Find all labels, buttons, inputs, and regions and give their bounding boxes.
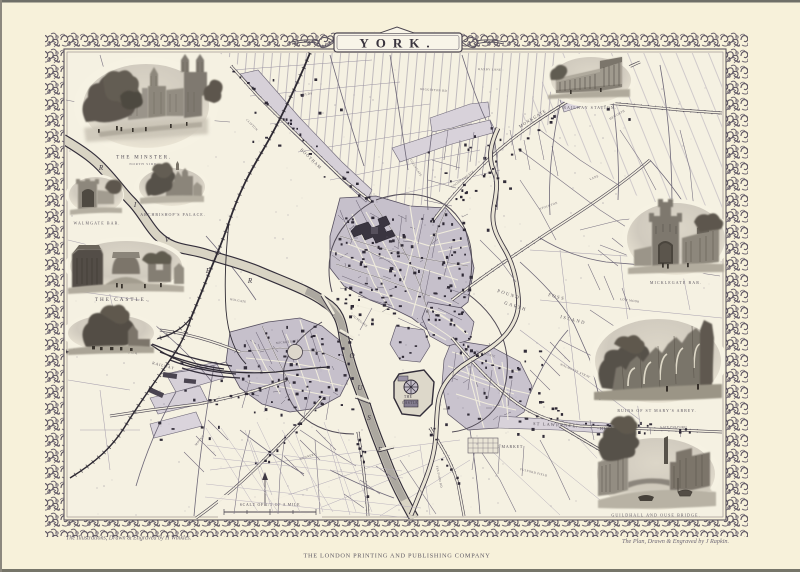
svg-text:GUILDHALL AND OUSE BRIDGE.: GUILDHALL AND OUSE BRIDGE.: [611, 513, 700, 518]
svg-text:V: V: [165, 236, 170, 244]
svg-text:The Illustrations, Drawn & Eng: The Illustrations, Drawn & Engraved by H…: [66, 536, 191, 542]
svg-text:O: O: [349, 352, 354, 360]
svg-text:NORTH SIDE.: NORTH SIDE.: [129, 162, 158, 166]
svg-text:YORK.: YORK.: [359, 36, 436, 51]
svg-text:THE: THE: [404, 395, 413, 399]
svg-text:S: S: [367, 414, 371, 422]
svg-text:THE MINSTER.: THE MINSTER.: [116, 156, 172, 161]
svg-text:RUINS OF ST MARY'S ABBEY.: RUINS OF ST MARY'S ABBEY.: [617, 408, 696, 413]
svg-text:ARCHBISHOP'S PALACE.: ARCHBISHOP'S PALACE.: [140, 212, 205, 217]
svg-text:R: R: [98, 164, 104, 172]
svg-text:THE CASTLE.: THE CASTLE.: [95, 297, 149, 303]
svg-text:R: R: [247, 277, 253, 285]
svg-text:E: E: [377, 446, 383, 454]
svg-text:The Plan, Drawn & Engraved by: The Plan, Drawn & Engraved by J Rapkin.: [622, 538, 729, 545]
svg-text:THE LONDON PRINTING AND PUBLIS: THE LONDON PRINTING AND PUBLISHING COMPA…: [303, 553, 490, 560]
svg-text:CASTLE: CASTLE: [402, 401, 418, 405]
svg-text:RAILWAY STATION.: RAILWAY STATION.: [563, 105, 617, 110]
svg-text:WALMGATE BAR.: WALMGATE BAR.: [74, 221, 121, 226]
svg-text:MICKLEGATE BAR.: MICKLEGATE BAR.: [650, 280, 702, 285]
svg-text:HAXBY LANE: HAXBY LANE: [478, 67, 501, 72]
